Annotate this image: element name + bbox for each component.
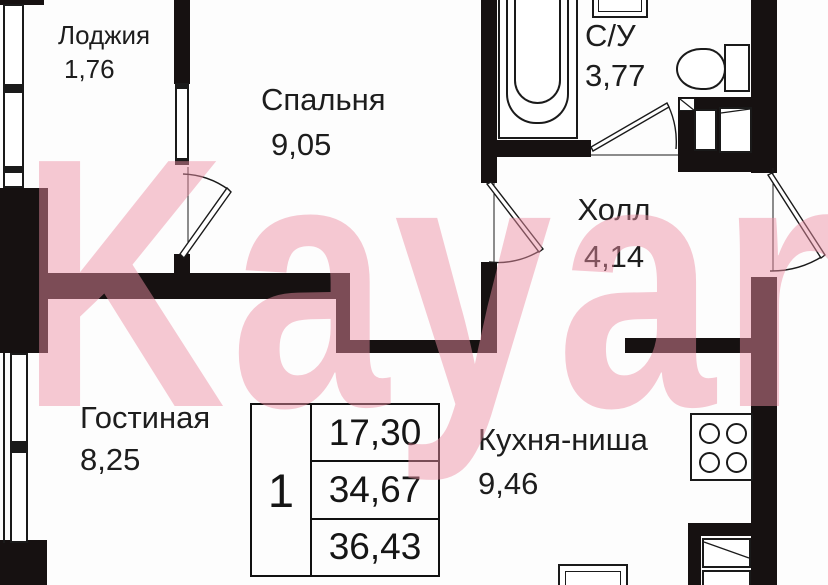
bathroom-door-leaf (591, 103, 669, 151)
wall (688, 523, 701, 585)
shaft-box (719, 107, 752, 153)
rooms-count-cell: 1 (252, 405, 312, 575)
window-outer-line (3, 353, 5, 543)
balcony-door-arc (183, 174, 229, 190)
toilet-tank (724, 44, 750, 92)
shaft-corner-mark (679, 98, 695, 111)
loggia-window (3, 4, 24, 188)
wall (336, 340, 497, 353)
room-name: Лоджия (58, 22, 150, 48)
room-name: Гостиная (80, 402, 210, 433)
room-name: С/У (585, 20, 645, 51)
apartment-area-value: 34,67 (312, 462, 438, 519)
bedroom-door-arc (489, 250, 541, 263)
area-info-table: 1 17,30 34,67 36,43 (250, 403, 440, 577)
bathtub-basin (514, 0, 561, 104)
stove-burner (699, 423, 720, 444)
total-area-value: 36,43 (312, 520, 438, 575)
room-label-kitchen: Кухня-ниша 9,46 (478, 424, 648, 499)
bathroom-door-arc (668, 105, 676, 149)
appliance (702, 570, 751, 585)
room-area: 3,77 (585, 60, 645, 91)
entrance-door-leaf (768, 173, 825, 258)
shaft-box (694, 109, 717, 151)
room-label-living: Гостиная 8,25 (80, 402, 210, 475)
room-name: Спальня (261, 84, 386, 115)
wall (625, 338, 777, 353)
room-name: Кухня-ниша (478, 424, 648, 455)
sink-inner (598, 0, 642, 12)
entrance-door-arc (770, 256, 823, 271)
wall (174, 0, 190, 84)
room-label-bedroom: Спальня 9,05 (261, 84, 386, 160)
window-mullion (177, 158, 187, 164)
floor-plan: Лоджия 1,76 Спальня 9,05 С/У 3,77 Холл 4… (0, 0, 828, 585)
areas-column: 17,30 34,67 36,43 (312, 405, 438, 575)
window-mullion (5, 166, 22, 173)
window-mullion (177, 83, 187, 89)
room-area: 4,14 (560, 241, 668, 272)
wall (0, 540, 47, 585)
room-label-hall: Холл 4,14 (560, 194, 668, 272)
bedroom-door-leaf (487, 182, 543, 252)
stove-burner (726, 452, 747, 473)
wall (0, 188, 48, 353)
balcony-block-window (175, 83, 189, 165)
room-area: 9,46 (478, 468, 648, 499)
window-mullion (5, 84, 22, 93)
wall (174, 254, 190, 278)
room-name: Холл (560, 194, 668, 225)
room-label-bathroom: С/У 3,77 (585, 20, 645, 91)
room-area: 8,25 (80, 444, 210, 475)
wall (751, 353, 777, 585)
stove-icon (690, 413, 753, 481)
toilet-bowl (676, 48, 726, 90)
living-area-value: 17,30 (312, 405, 438, 462)
wall (751, 0, 777, 173)
stove-burner (726, 423, 747, 444)
wall (481, 175, 497, 183)
room-area: 9,05 (271, 129, 386, 160)
kitchen-island-inner (565, 571, 621, 585)
stove-burner (699, 452, 720, 473)
wall (481, 262, 497, 353)
appliance (702, 538, 751, 568)
wall (481, 140, 591, 157)
room-label-loggia: Лоджия 1,76 (58, 22, 150, 82)
window-mullion (12, 441, 26, 453)
room-area: 1,76 (64, 56, 150, 82)
balcony-door-leaf (180, 188, 231, 258)
